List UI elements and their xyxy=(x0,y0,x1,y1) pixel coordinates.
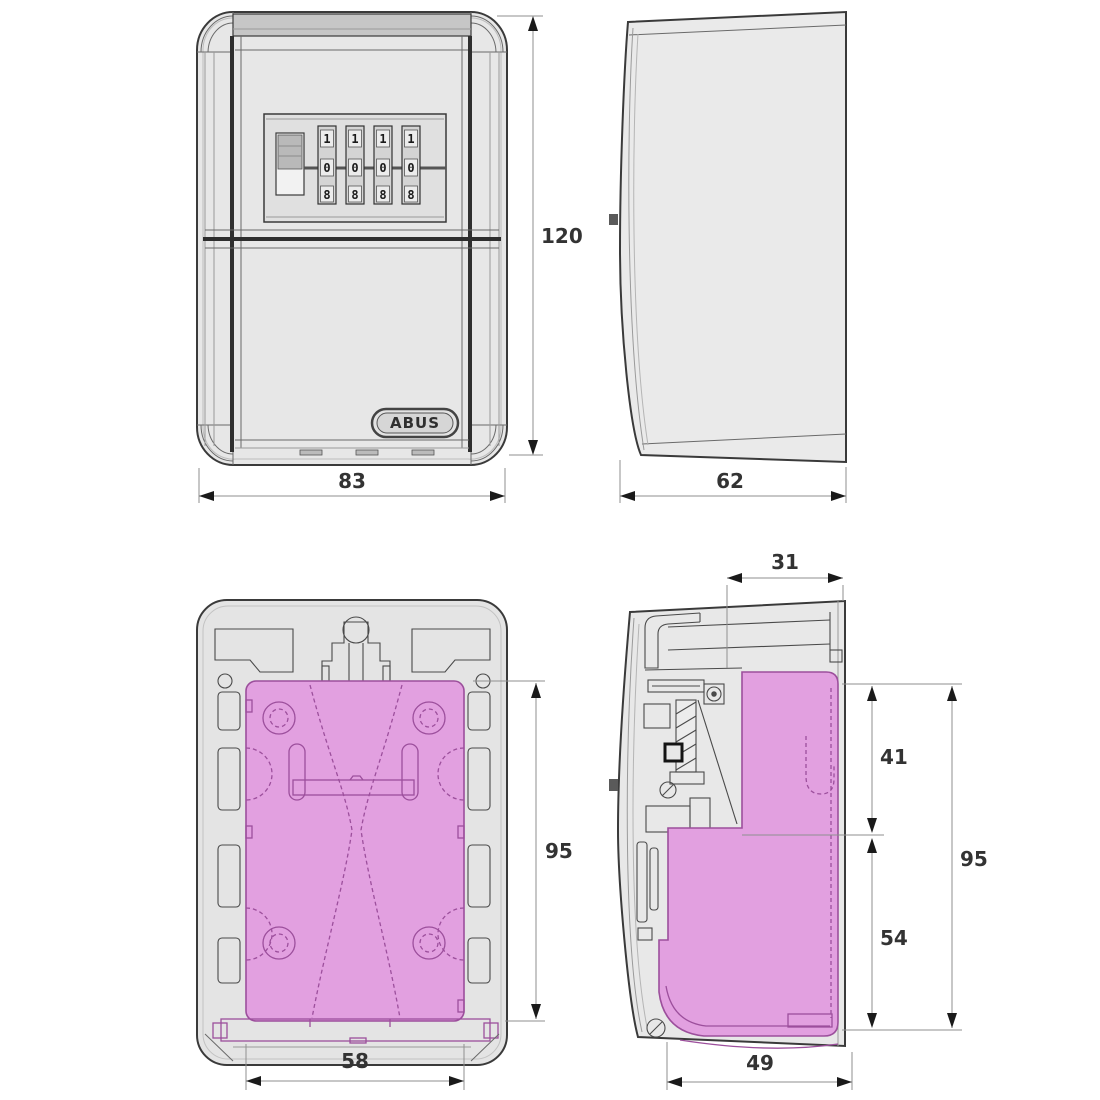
front-top-band xyxy=(233,14,471,36)
side-body xyxy=(620,12,846,462)
section-total-height-label: 95 xyxy=(960,847,988,871)
dial-digit: 1 xyxy=(407,132,414,146)
section-lower-height-label: 54 xyxy=(880,926,908,950)
section-view: 31 41 54 95 49 xyxy=(609,550,988,1090)
section-top-depth-label: 31 xyxy=(771,550,799,574)
section-bottom-depth-label: 49 xyxy=(746,1051,774,1075)
dial-digit: 0 xyxy=(351,161,358,175)
abus-logo: ABUS xyxy=(372,409,458,437)
back-plate-height-label: 95 xyxy=(545,839,573,863)
vent-slot xyxy=(356,450,378,455)
dial-4: 1 0 8 xyxy=(402,126,420,204)
dial-digit: 0 xyxy=(379,161,386,175)
front-view: 1 0 8 1 0 8 1 xyxy=(197,12,583,503)
combination-lock-panel: 1 0 8 1 0 8 1 xyxy=(264,114,446,222)
dial-digit: 0 xyxy=(407,161,414,175)
side-hinge-nub xyxy=(609,214,618,225)
dimension-section-bottom-depth: 49 xyxy=(667,1042,852,1090)
dial-digit: 1 xyxy=(323,132,330,146)
side-view: 62 xyxy=(609,12,846,503)
dial-digit: 1 xyxy=(351,132,358,146)
side-depth-label: 62 xyxy=(716,469,744,493)
dial-2: 1 0 8 xyxy=(346,126,364,204)
mounting-plate xyxy=(213,681,498,1043)
dial-digit: 0 xyxy=(323,161,330,175)
dimension-front-height: 120 xyxy=(497,16,583,455)
dial-digit: 1 xyxy=(379,132,386,146)
release-slider xyxy=(276,133,304,195)
dial-digit: 8 xyxy=(379,188,386,202)
dimension-front-width: 83 xyxy=(199,468,505,503)
abus-logo-text: ABUS xyxy=(390,414,440,432)
vent-slot xyxy=(412,450,434,455)
dial-1: 1 0 8 xyxy=(318,126,336,204)
front-width-label: 83 xyxy=(338,469,366,493)
dial-digit: 8 xyxy=(351,188,358,202)
section-upper-height-label: 41 xyxy=(880,745,908,769)
dial-digit: 8 xyxy=(323,188,330,202)
section-hinge-nub xyxy=(609,779,618,791)
vent-slot xyxy=(300,450,322,455)
back-view: 95 58 xyxy=(197,600,573,1090)
dimension-side-depth: 62 xyxy=(620,460,846,503)
dial-3: 1 0 8 xyxy=(374,126,392,204)
dial-digit: 8 xyxy=(407,188,414,202)
key-safe-technical-drawing: 1 0 8 1 0 8 1 xyxy=(0,0,1100,1100)
back-plate-width-label: 58 xyxy=(341,1049,369,1073)
front-height-label: 120 xyxy=(541,224,583,248)
drawing-canvas: 1 0 8 1 0 8 1 xyxy=(0,0,1100,1100)
